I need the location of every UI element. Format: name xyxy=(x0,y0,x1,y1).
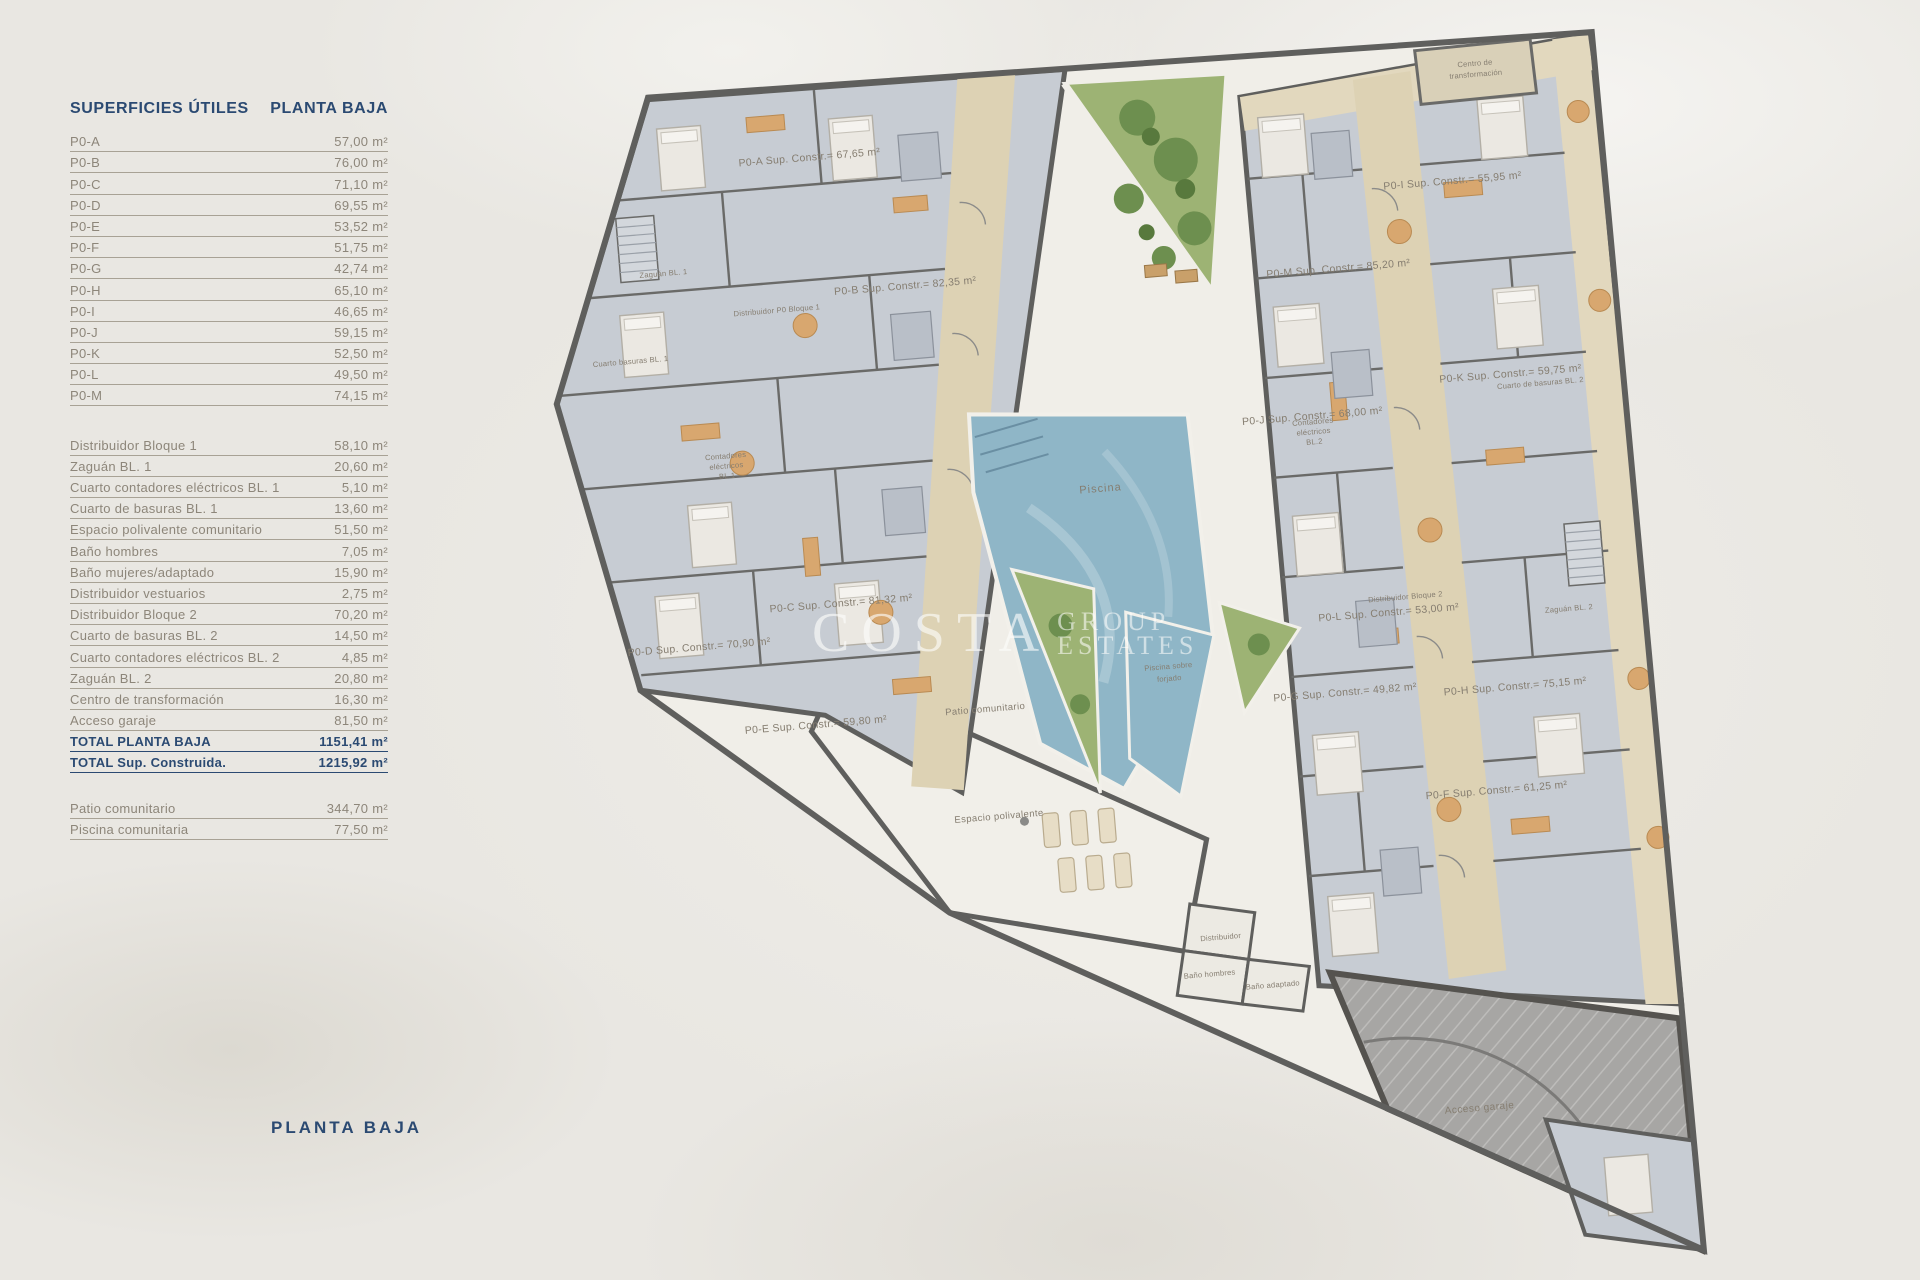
table-subtitle: PLANTA BAJA xyxy=(270,100,388,118)
table-row: Baño mujeres/adaptado15,90 m² xyxy=(70,562,388,583)
row-label: P0-J xyxy=(70,325,98,340)
row-label: P0-A xyxy=(70,134,100,149)
row-value: 76,00 m² xyxy=(334,155,388,170)
table-row: Cuarto de basuras BL. 214,50 m² xyxy=(70,625,388,646)
row-label: Cuarto de basuras BL. 2 xyxy=(70,628,218,643)
table-row: P0-J59,15 m² xyxy=(70,322,388,343)
row-label: Cuarto contadores eléctricos BL. 1 xyxy=(70,480,280,495)
row-label: Espacio polivalente comunitario xyxy=(70,522,262,537)
row-label: Baño mujeres/adaptado xyxy=(70,565,214,580)
row-value: 52,50 m² xyxy=(334,346,388,361)
table-row: Zaguán BL. 220,80 m² xyxy=(70,668,388,689)
row-value: 15,90 m² xyxy=(334,565,388,580)
table-row: P0-D69,55 m² xyxy=(70,195,388,216)
table-header: SUPERFICIES ÚTILES PLANTA BAJA xyxy=(70,100,388,118)
total-row: TOTAL PLANTA BAJA1151,41 m² xyxy=(70,731,388,752)
row-label: Distribuidor Bloque 1 xyxy=(70,438,197,453)
row-value: 74,15 m² xyxy=(334,388,388,403)
row-value: 5,10 m² xyxy=(342,480,388,495)
row-label: Centro de transformación xyxy=(70,692,224,707)
table-row: P0-G42,74 m² xyxy=(70,258,388,279)
row-label: Acceso garaje xyxy=(70,713,156,728)
table-row: P0-L49,50 m² xyxy=(70,364,388,385)
row-value: 20,80 m² xyxy=(334,671,388,686)
row-value: 59,15 m² xyxy=(334,325,388,340)
table-row: Cuarto contadores eléctricos BL. 15,10 m… xyxy=(70,477,388,498)
surfaces-table: SUPERFICIES ÚTILES PLANTA BAJA P0-A57,00… xyxy=(70,100,388,840)
table-row: P0-C71,10 m² xyxy=(70,173,388,194)
table-row: P0-B76,00 m² xyxy=(70,152,388,173)
row-label: P0-I xyxy=(70,304,95,319)
row-label: Cuarto de basuras BL. 1 xyxy=(70,501,218,516)
row-value: 14,50 m² xyxy=(334,628,388,643)
table-row: Cuarto de basuras BL. 113,60 m² xyxy=(70,498,388,519)
row-value: 49,50 m² xyxy=(334,367,388,382)
row-value: 57,00 m² xyxy=(334,134,388,149)
table-row: Espacio polivalente comunitario51,50 m² xyxy=(70,519,388,540)
table-row: P0-K52,50 m² xyxy=(70,343,388,364)
row-value: 344,70 m² xyxy=(327,801,388,816)
table-row: Cuarto contadores eléctricos BL. 24,85 m… xyxy=(70,646,388,667)
row-value: 81,50 m² xyxy=(334,713,388,728)
row-label: P0-L xyxy=(70,367,99,382)
row-value: 1151,41 m² xyxy=(319,734,388,749)
row-value: 51,75 m² xyxy=(334,240,388,255)
table-row: P0-I46,65 m² xyxy=(70,301,388,322)
row-label: Zaguán BL. 1 xyxy=(70,459,152,474)
row-label: P0-E xyxy=(70,219,100,234)
row-value: 70,20 m² xyxy=(334,607,388,622)
plan-title: PLANTA BAJA xyxy=(271,1118,422,1138)
row-label: Zaguán BL. 2 xyxy=(70,671,152,686)
row-value: 58,10 m² xyxy=(334,438,388,453)
table-row: P0-M74,15 m² xyxy=(70,385,388,406)
row-value: 51,50 m² xyxy=(334,522,388,537)
row-label: Baño hombres xyxy=(70,544,158,559)
table-row: Zaguán BL. 120,60 m² xyxy=(70,456,388,477)
row-value: 13,60 m² xyxy=(334,501,388,516)
row-value: 77,50 m² xyxy=(334,822,388,837)
row-value: 1215,92 m² xyxy=(319,755,389,770)
row-label: P0-M xyxy=(70,388,102,403)
row-value: 16,30 m² xyxy=(334,692,388,707)
row-label: TOTAL PLANTA BAJA xyxy=(70,734,211,749)
row-value: 2,75 m² xyxy=(342,586,388,601)
table-row: Patio comunitario344,70 m² xyxy=(70,797,388,818)
table-row: Piscina comunitaria77,50 m² xyxy=(70,819,388,840)
row-label: P0-K xyxy=(70,346,100,361)
apartments-section: P0-A57,00 m² P0-B76,00 m² P0-C71,10 m² P… xyxy=(70,131,388,406)
row-value: 46,65 m² xyxy=(334,304,388,319)
row-value: 53,52 m² xyxy=(334,219,388,234)
row-label: P0-F xyxy=(70,240,99,255)
room-label: BL.1 xyxy=(719,471,736,481)
table-title: SUPERFICIES ÚTILES xyxy=(70,100,249,118)
table-row: Baño hombres7,05 m² xyxy=(70,540,388,561)
table-row: P0-E53,52 m² xyxy=(70,216,388,237)
row-label: P0-B xyxy=(70,155,100,170)
table-row: Acceso garaje81,50 m² xyxy=(70,710,388,731)
row-label: Cuarto contadores eléctricos BL. 2 xyxy=(70,650,280,665)
total-row: TOTAL Sup. Construida.1215,92 m² xyxy=(70,752,388,773)
row-value: 42,74 m² xyxy=(334,261,388,276)
row-label: P0-C xyxy=(70,177,101,192)
table-row: P0-F51,75 m² xyxy=(70,237,388,258)
row-label: P0-G xyxy=(70,261,102,276)
row-value: 71,10 m² xyxy=(334,177,388,192)
row-value: 20,60 m² xyxy=(334,459,388,474)
row-value: 4,85 m² xyxy=(342,650,388,665)
plan-group: Piscina Piscina sobre forjado Patio comu… xyxy=(532,19,1704,1280)
table-row: Distribuidor Bloque 270,20 m² xyxy=(70,604,388,625)
table-row: Centro de transformación16,30 m² xyxy=(70,689,388,710)
table-row: Distribuidor vestuarios2,75 m² xyxy=(70,583,388,604)
table-row: Distribuidor Bloque 158,10 m² xyxy=(70,434,388,455)
room-label: BL.2 xyxy=(1306,437,1323,447)
row-label: Distribuidor Bloque 2 xyxy=(70,607,197,622)
row-label: Piscina comunitaria xyxy=(70,822,188,837)
row-value: 7,05 m² xyxy=(342,544,388,559)
row-value: 69,55 m² xyxy=(334,198,388,213)
row-label: P0-D xyxy=(70,198,101,213)
row-label: Patio comunitario xyxy=(70,801,176,816)
outdoor-section: Patio comunitario344,70 m² Piscina comun… xyxy=(70,797,388,839)
row-label: TOTAL Sup. Construida. xyxy=(70,755,226,770)
common-areas-section: Distribuidor Bloque 158,10 m² Zaguán BL.… xyxy=(70,434,388,773)
row-label: P0-H xyxy=(70,283,101,298)
table-row: P0-H65,10 m² xyxy=(70,279,388,300)
row-value: 65,10 m² xyxy=(334,283,388,298)
table-row: P0-A57,00 m² xyxy=(70,131,388,152)
stairs-block-2 xyxy=(1564,521,1605,586)
row-label: Distribuidor vestuarios xyxy=(70,586,206,601)
